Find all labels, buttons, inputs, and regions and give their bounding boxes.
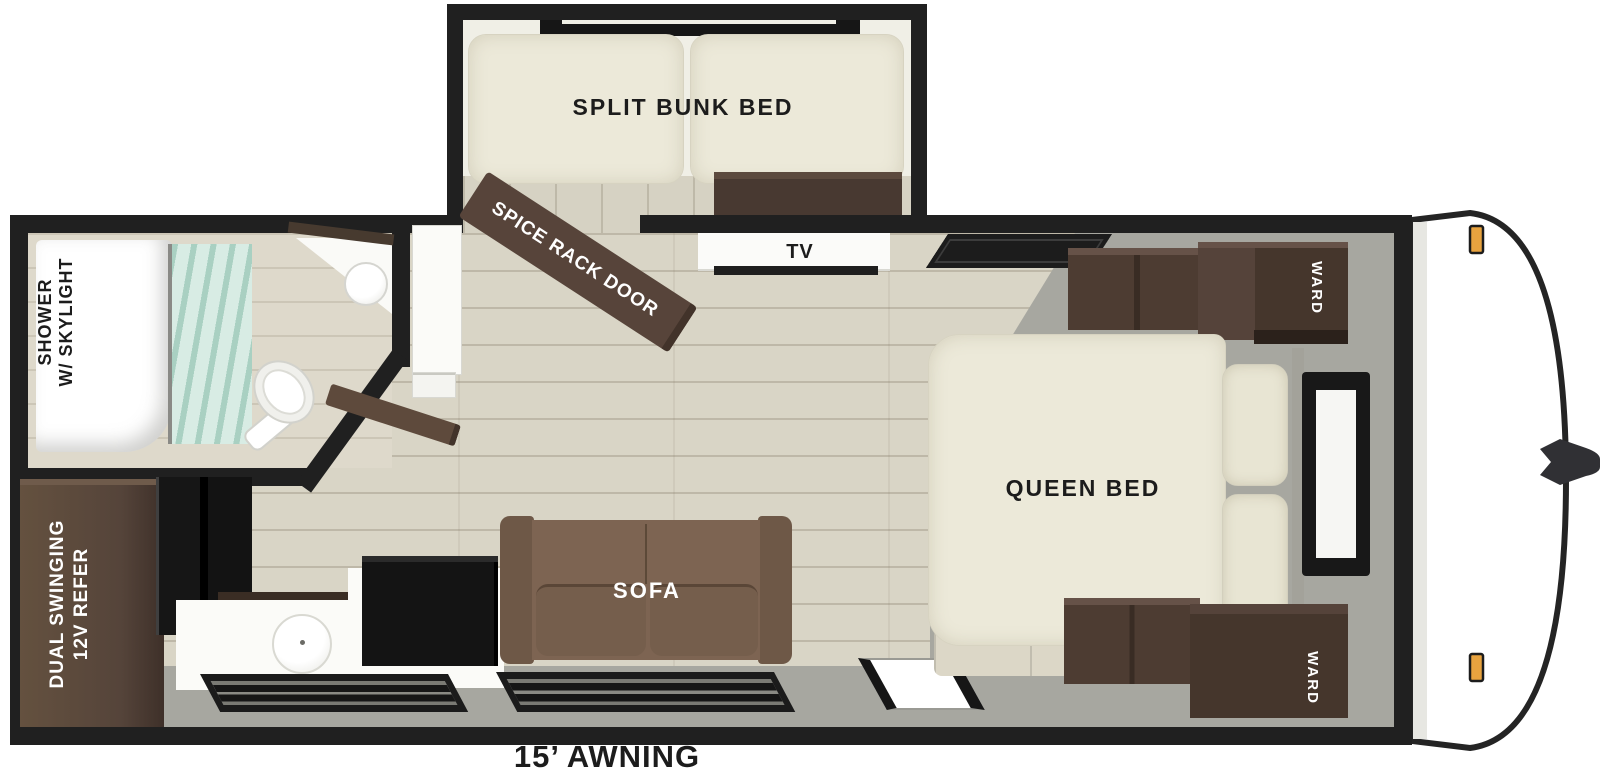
refer-label-line1: DUAL SWINGING (46, 512, 70, 696)
shower-label-line2: W/ SKYLIGHT (56, 242, 77, 402)
wall-top-right (924, 215, 1412, 233)
wardrobe-bottom (1190, 604, 1348, 718)
sofa-label: SOFA (567, 578, 727, 604)
stove (362, 556, 498, 666)
kitchen-window (200, 674, 468, 712)
marker-light-top (1470, 226, 1483, 253)
refer-label-line2: 12V REFER (70, 512, 94, 696)
floorplan-diagram: SPLIT BUNK BED SHOWER W/ SKYLIGHT DUAL S… (0, 0, 1600, 776)
shower-label-line1: SHOWER (35, 242, 56, 402)
wall-front-right (1394, 215, 1412, 745)
sofa-armrest-right (758, 516, 792, 664)
kitchen-sink-drain (300, 640, 305, 645)
pillow-bottom (1222, 494, 1288, 622)
tv-label: TV (758, 241, 842, 264)
hall-cabinet-drawers (412, 372, 456, 398)
marker-light-bottom (1470, 654, 1483, 681)
cap-body (1412, 213, 1566, 748)
shower-curtain (168, 244, 252, 444)
wardrobe-top-base (1254, 330, 1348, 344)
queen-bed-label: QUEEN BED (961, 475, 1205, 502)
bunk-dresser (714, 172, 902, 216)
tv-unit (714, 266, 878, 275)
wardrobe-bottom-label: WARD (1303, 640, 1321, 716)
shower-label: SHOWER W/ SKYLIGHT (35, 242, 79, 402)
wardrobe-top (1198, 242, 1348, 340)
front-window-pane (1316, 390, 1356, 558)
front-cap (1408, 208, 1600, 753)
refer-label: DUAL SWINGING 12V REFER (46, 512, 98, 696)
sofa-seam (645, 524, 647, 584)
wardrobe-top-label: WARD (1307, 250, 1325, 326)
bunk-label: SPLIT BUNK BED (518, 94, 848, 121)
pillow-top (1222, 364, 1288, 486)
bedside-cabinet (1064, 598, 1200, 684)
bathroom-sink (344, 262, 388, 306)
sofa-armrest-left (500, 516, 534, 664)
overhead-cabinet (1068, 248, 1206, 330)
awning-label: 15’ AWNING (447, 739, 767, 775)
sofa-window (496, 672, 795, 712)
cap-inner-shade (1413, 222, 1427, 739)
wall-top-mid (640, 215, 912, 233)
hall-cabinet (412, 225, 462, 375)
bathroom-wall-right (392, 215, 410, 367)
